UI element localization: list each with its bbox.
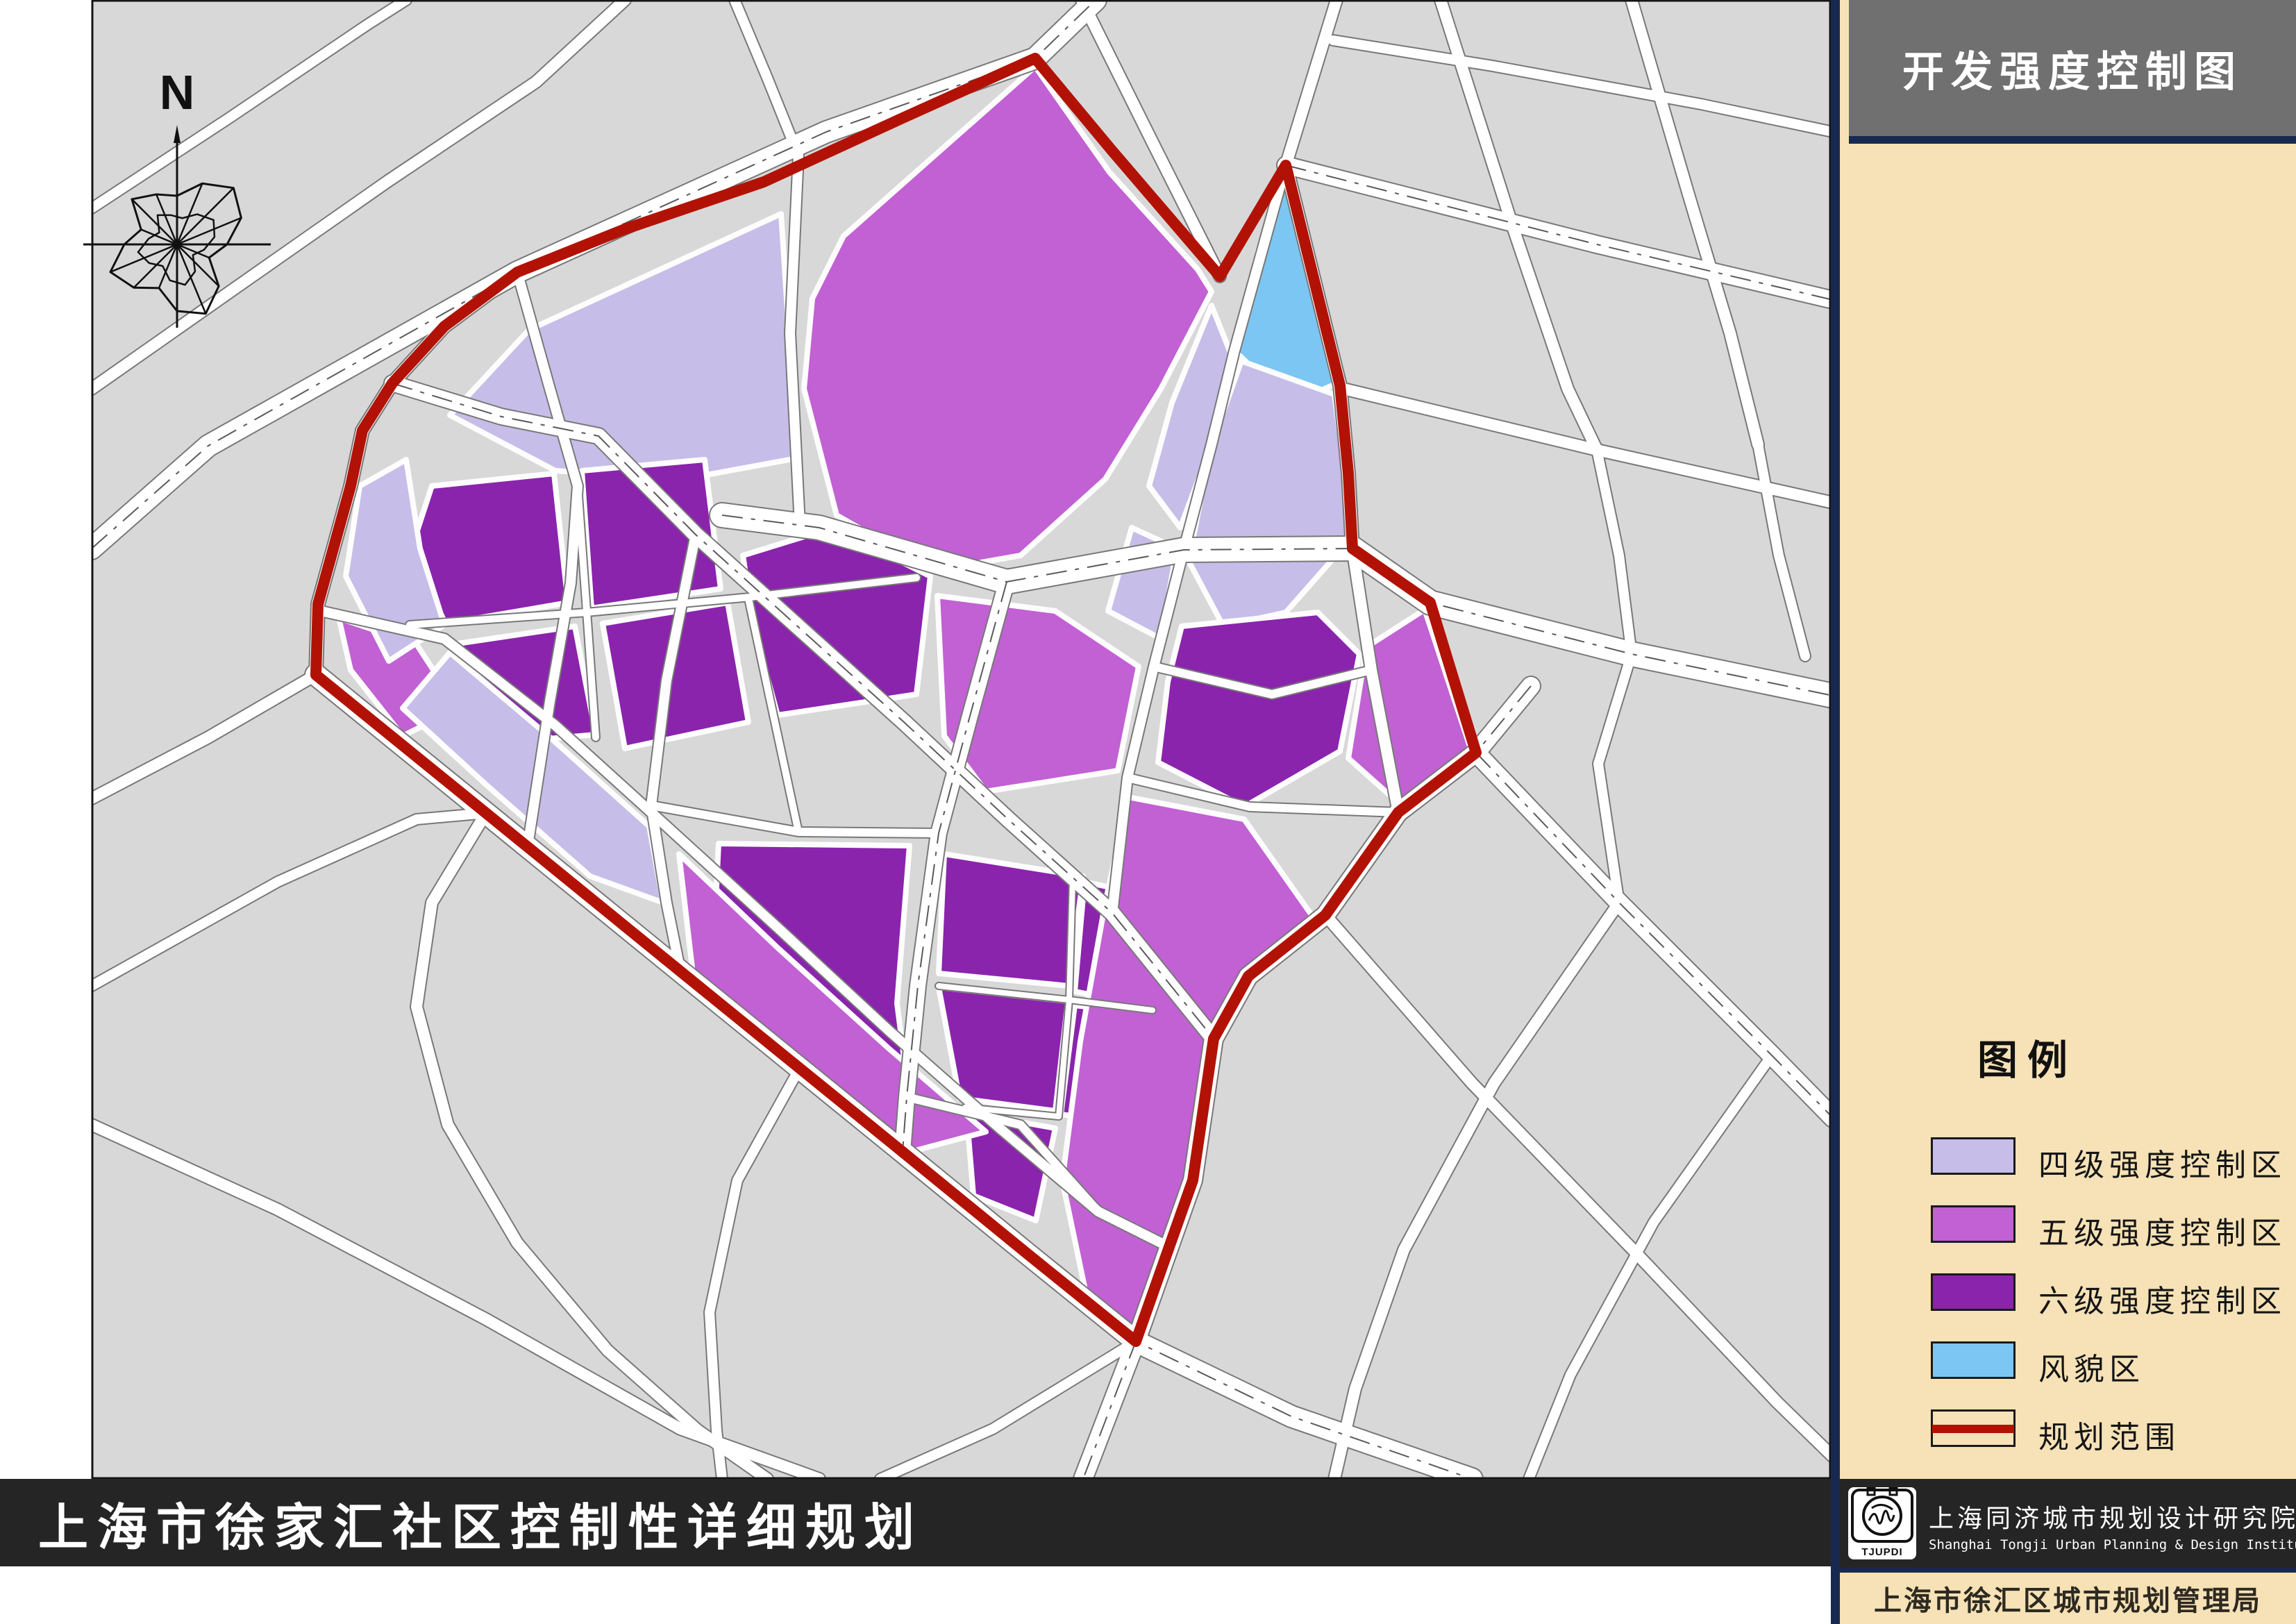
institute-name-cn: 上海同济城市规划设计研究院 xyxy=(1929,1498,2296,1534)
sheet-title: 开发强度控制图 xyxy=(1902,38,2243,99)
north-label: N xyxy=(160,65,195,119)
footer-title-bar: 上海市徐家汇社区控制性详细规划 xyxy=(0,1479,1836,1566)
heritage-swatch xyxy=(1931,1341,2016,1379)
legend-label: 五级强度控制区 xyxy=(2038,1208,2286,1253)
authority-name: 上海市徐汇区城市规划管理局 xyxy=(1874,1578,2262,1618)
tjupdi-logo: TJUPDI xyxy=(1848,1487,1916,1559)
legend-item-heritage: 风貌区 xyxy=(1931,1341,2292,1380)
boundary-line-sample xyxy=(1932,1425,2014,1433)
map-canvas: N xyxy=(0,0,1836,1479)
legend-label: 六级强度控制区 xyxy=(2038,1276,2286,1321)
level6-swatch xyxy=(1931,1273,2016,1311)
legend-label: 四级强度控制区 xyxy=(2038,1140,2286,1184)
footer-margin xyxy=(0,1566,1836,1624)
level4-swatch xyxy=(1931,1137,2016,1175)
legend-label: 规划范围 xyxy=(2038,1412,2180,1457)
legend-label: 风貌区 xyxy=(2038,1344,2145,1389)
institute-name-en: Shanghai Tongji Urban Planning & Design … xyxy=(1929,1537,2296,1552)
authority-box: 上海市徐汇区城市规划管理局 xyxy=(1831,1568,2296,1624)
legend-heading: 图例 xyxy=(1977,1028,2077,1086)
boundary-swatch xyxy=(1931,1409,2016,1447)
map-area: N xyxy=(0,0,1836,1479)
sidebar-panel: 开发强度控制图 图例 四级强度控制区 五级强度控制区 六级强度控制区 风貌区 规… xyxy=(1831,0,2296,1624)
legend: 图例 四级强度控制区 五级强度控制区 六级强度控制区 风貌区 规划范围 xyxy=(1849,1000,2296,1472)
tjupdi-logo-text: TJUPDI xyxy=(1848,1546,1916,1558)
legend-item-boundary: 规划范围 xyxy=(1931,1409,2292,1448)
institute-credit-box: TJUPDI 上海同济城市规划设计研究院 Shanghai Tongji Urb… xyxy=(1831,1479,2296,1568)
sheet-title-box: 开发强度控制图 xyxy=(1849,0,2296,144)
legend-item-level6: 六级强度控制区 xyxy=(1931,1273,2292,1312)
legend-item-level5: 五级强度控制区 xyxy=(1931,1205,2292,1244)
level5-swatch xyxy=(1931,1205,2016,1243)
legend-item-level4: 四级强度控制区 xyxy=(1931,1137,2292,1176)
project-title: 上海市徐家汇社区控制性详细规划 xyxy=(0,1487,923,1559)
